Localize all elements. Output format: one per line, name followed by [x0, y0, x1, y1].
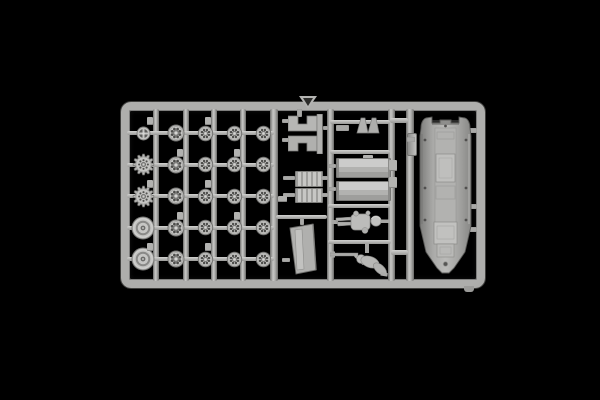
gate-stub [321, 176, 328, 180]
gate-tab [389, 160, 397, 171]
part-bench-seat [336, 181, 391, 201]
wheel-road-wheel-large [166, 249, 186, 269]
wheel-road-wheel [196, 218, 215, 237]
part-figure-prone [330, 243, 390, 279]
gate-stub [282, 258, 290, 262]
gate-stub [321, 193, 328, 197]
wheel-sprocket-wheel [131, 152, 156, 177]
gate-tab [205, 180, 211, 188]
wheel-road-wheel-large [166, 218, 186, 238]
wheel-road-wheel [254, 187, 273, 206]
gate-tab [205, 117, 211, 125]
gate-tab [389, 177, 397, 188]
gate-stub [283, 176, 295, 180]
part-figure-standing [332, 209, 390, 235]
sprue [0, 0, 600, 400]
wheel-idler-wheel [130, 215, 156, 241]
part-bench-seat [336, 158, 391, 178]
wheel-road-wheel-large [166, 186, 186, 206]
wheel-road-wheel [254, 218, 273, 237]
wheel-hub-wheel [135, 125, 152, 142]
gate-tab [177, 149, 183, 157]
wheel-road-wheel [254, 124, 273, 143]
runner-horizontal [330, 150, 390, 154]
part-door-panel [287, 223, 319, 277]
runner-horizontal [328, 204, 390, 208]
wheel-road-wheel [225, 218, 244, 237]
part-vehicle-hull [414, 112, 478, 282]
wheel-road-wheel [254, 250, 273, 269]
wheel-road-wheel [225, 187, 244, 206]
wheel-road-wheel-large [166, 155, 186, 175]
gate-stub [323, 126, 328, 130]
gate-tab [234, 212, 240, 220]
gate-stub [282, 138, 289, 142]
gate-tab [147, 117, 153, 125]
gate-stub [329, 164, 336, 168]
wheel-road-wheel [254, 155, 273, 174]
gate-tab [234, 149, 240, 157]
part-stepped-bracket-pair [288, 114, 324, 154]
gate-tab [147, 180, 153, 188]
wheel-road-wheel [196, 155, 215, 174]
wheel-road-wheel [196, 124, 215, 143]
wheel-road-wheel [196, 250, 215, 269]
wheel-road-wheel [196, 187, 215, 206]
gate-stub [329, 187, 336, 191]
photo-canvas [0, 0, 600, 400]
gate-stub [282, 119, 289, 123]
gate-tab [278, 196, 287, 202]
gate-tab [177, 212, 183, 220]
gate-nub [464, 286, 474, 292]
wheel-road-wheel [225, 155, 244, 174]
wheel-road-wheel [225, 250, 244, 269]
gate-tab [205, 243, 211, 251]
part-small-bar [336, 125, 349, 131]
part-ribbed-block [295, 171, 323, 187]
wheel-road-wheel-large [166, 123, 186, 143]
wheel-road-wheel [225, 124, 244, 143]
gate-tab [147, 243, 153, 251]
runner-horizontal [391, 250, 408, 255]
part-ribbed-block [295, 188, 323, 203]
runner-horizontal [390, 118, 408, 123]
part-wedge-pair [356, 116, 380, 134]
